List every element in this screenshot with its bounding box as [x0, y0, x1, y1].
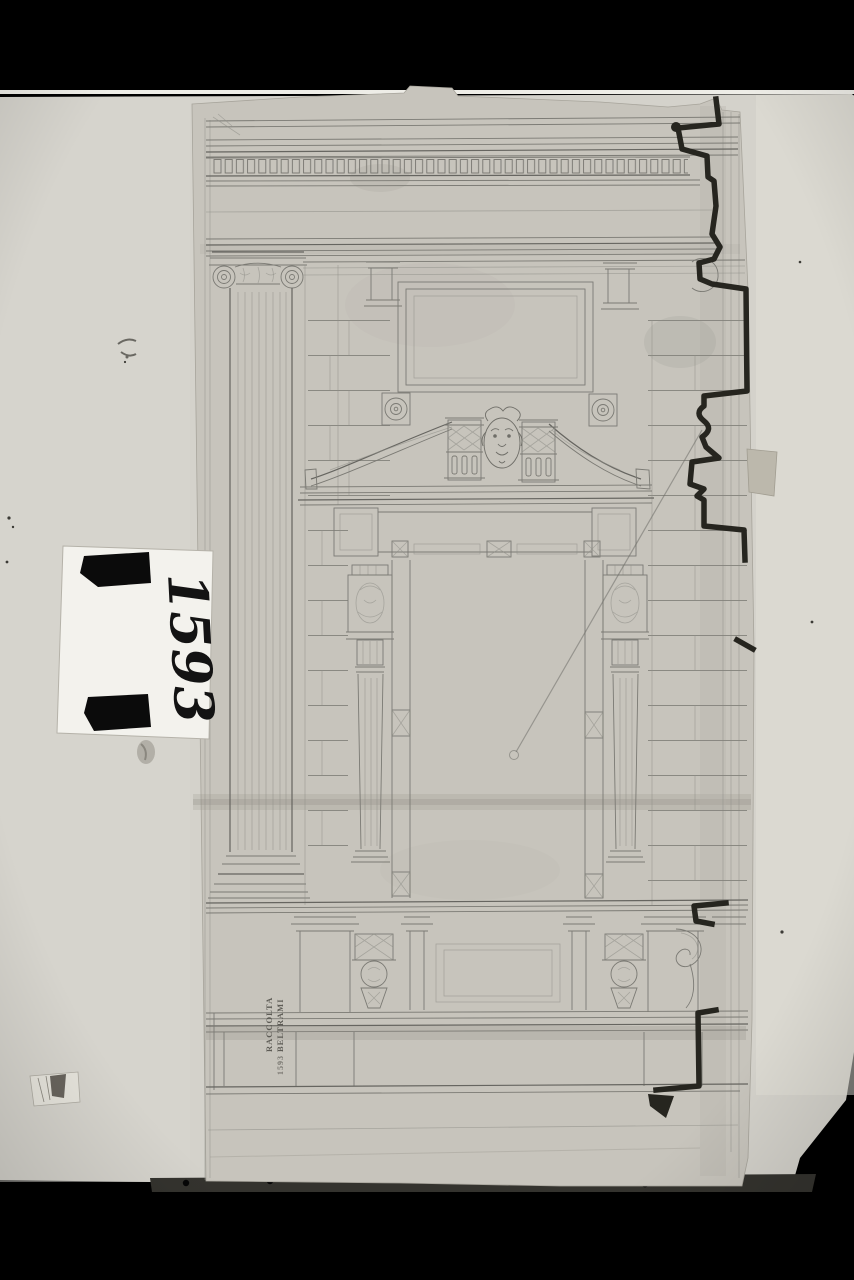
- archival-photo-stage: RACCOLTA BELTRAMI 1593 1593: [0, 0, 854, 1280]
- archival-photograph: RACCOLTA BELTRAMI 1593 1593: [0, 0, 854, 1280]
- vignette-overlay: [0, 0, 854, 1280]
